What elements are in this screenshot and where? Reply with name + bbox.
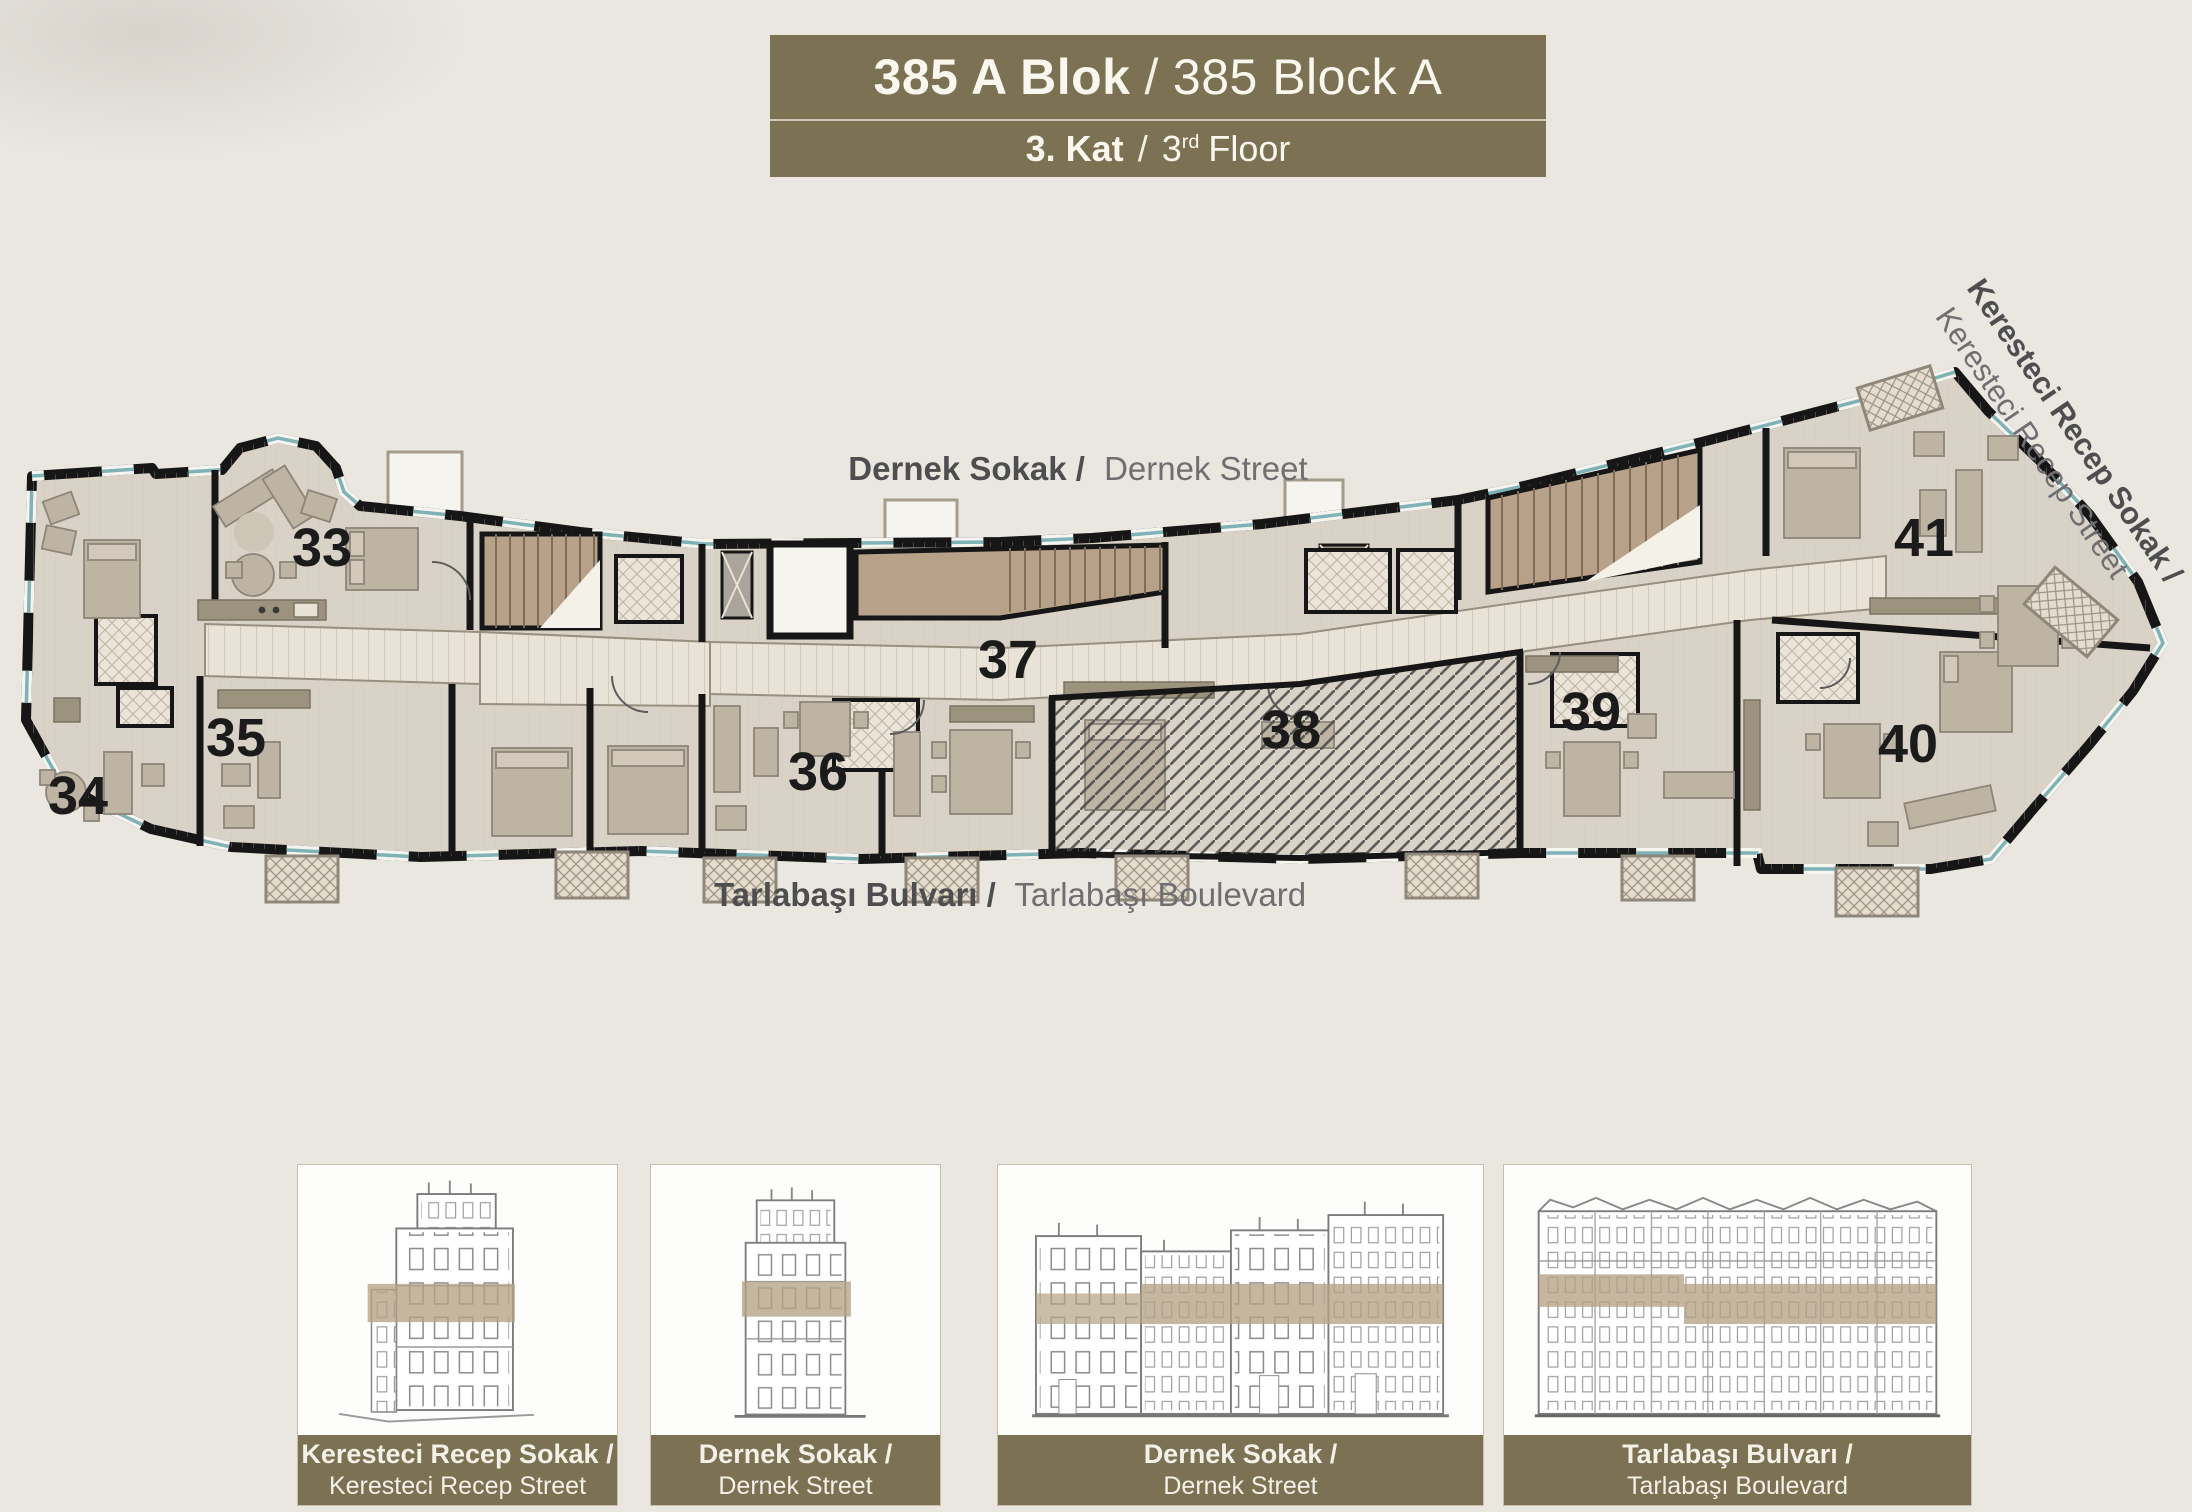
elevation-drawing-keresteci <box>298 1165 617 1435</box>
brochure-page: 385 A Blok / 385 Block A 3. Kat / 3rdFlo… <box>0 0 2192 1512</box>
unit-label-41: 41 <box>1894 508 1954 568</box>
elevation-card-keresteci: Keresteci Recep Sokak / Keresteci Recep … <box>297 1164 618 1506</box>
unit-label-39: 39 <box>1561 682 1621 742</box>
elevation-caption-dernek-1: Dernek Sokak / Dernek Street <box>651 1435 940 1505</box>
unit-label-40: 40 <box>1878 714 1938 774</box>
elevation-card-dernek-2: Dernek Sokak / Dernek Street <box>997 1164 1484 1506</box>
elevation-drawing-dernek-1 <box>651 1165 940 1435</box>
street-label-tarlabasi: Tarlabaşı Bulvarı / Tarlabaşı Boulevard <box>714 876 1306 913</box>
elevation-drawing-dernek-2 <box>998 1165 1483 1435</box>
elevation-card-dernek-1: Dernek Sokak / Dernek Street <box>650 1164 941 1506</box>
unit-label-33: 33 <box>292 518 352 578</box>
elevation-drawing-tarlabasi <box>1504 1165 1971 1435</box>
unit-label-35: 35 <box>206 708 266 768</box>
unit-label-36: 36 <box>788 742 848 802</box>
elevation-caption-dernek-2: Dernek Sokak / Dernek Street <box>998 1435 1483 1505</box>
elevation-caption-keresteci: Keresteci Recep Sokak / Keresteci Recep … <box>298 1435 617 1505</box>
staircase-left <box>482 534 600 628</box>
elevation-card-tarlabasi: Tarlabaşı Bulvarı / Tarlabaşı Boulevard <box>1503 1164 1972 1506</box>
unit-label-34: 34 <box>48 766 108 826</box>
street-label-dernek: Dernek Sokak / Dernek Street <box>848 450 1307 487</box>
elevation-caption-tarlabasi: Tarlabaşı Bulvarı / Tarlabaşı Boulevard <box>1504 1435 1971 1505</box>
unit-label-37: 37 <box>978 630 1038 690</box>
unit-label-38: 38 <box>1261 700 1321 760</box>
